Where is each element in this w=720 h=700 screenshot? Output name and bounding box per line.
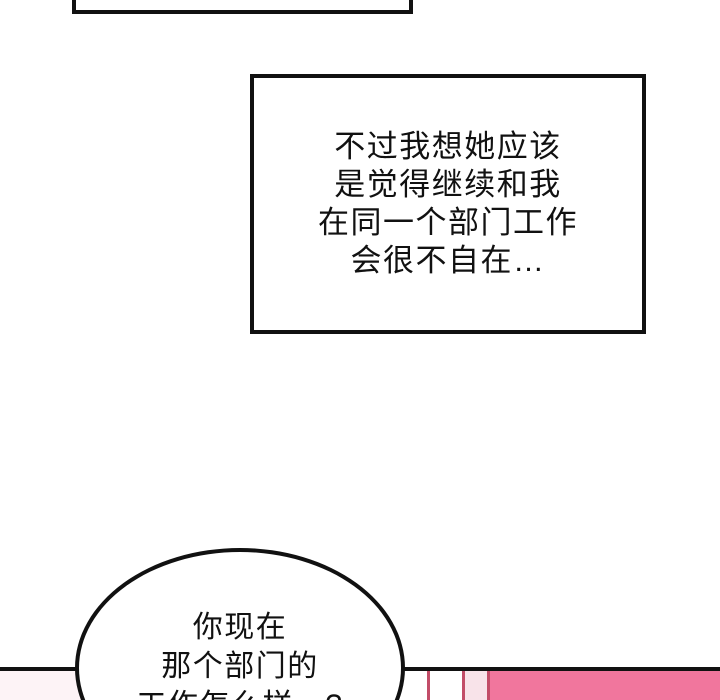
ellipse-bubble-line: 工作怎么样…? <box>75 686 405 700</box>
ellipse-bubble-line: 那个部门的 <box>75 647 405 686</box>
rect-bubble-line: 会很不自在… <box>351 242 546 280</box>
next-panel-pink-area <box>490 671 720 700</box>
rect-speech-bubble: 不过我想她应该 是觉得继续和我 在同一个部门工作 会很不自在… <box>250 74 646 334</box>
ellipse-bubble-text: 你现在 那个部门的 工作怎么样…? <box>75 608 405 700</box>
top-panel-cutoff-box <box>72 0 413 14</box>
next-panel-pale-band <box>465 671 487 700</box>
ellipse-bubble-line: 你现在 <box>75 608 405 647</box>
rect-bubble-line: 不过我想她应该 <box>334 128 562 166</box>
next-panel-stripe-line <box>427 671 430 700</box>
comic-page: 不过我想她应该 是觉得继续和我 在同一个部门工作 会很不自在… 你现在 那个部门… <box>0 0 720 700</box>
rect-bubble-line: 在同一个部门工作 <box>318 204 578 242</box>
rect-bubble-line: 是觉得继续和我 <box>334 166 562 204</box>
